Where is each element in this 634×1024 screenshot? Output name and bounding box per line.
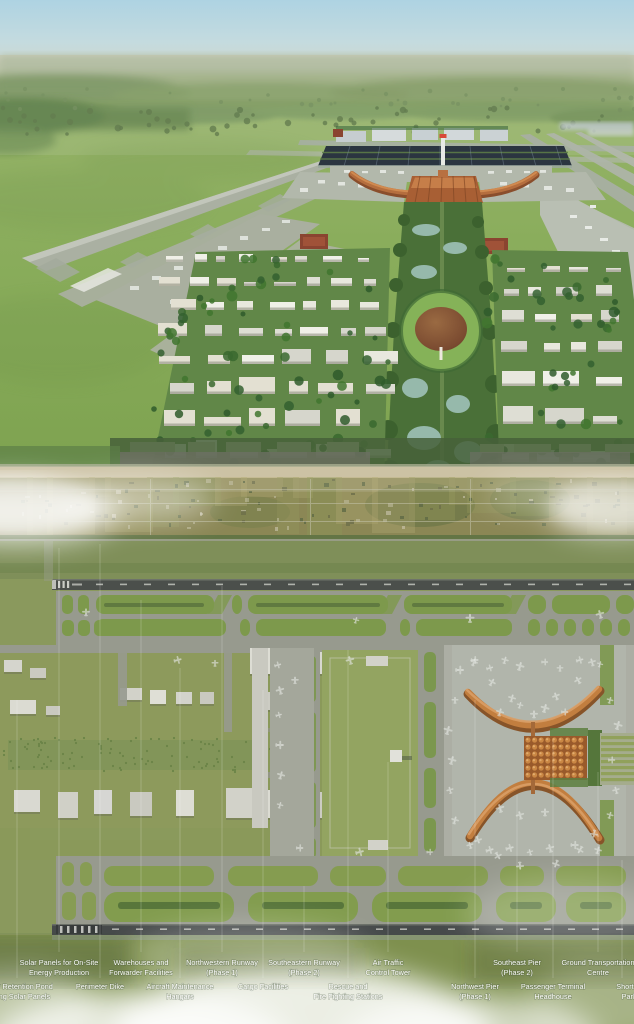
svg-text:Energy Production: Energy Production — [29, 968, 89, 977]
svg-text:(Phase 2): (Phase 2) — [288, 968, 320, 977]
svg-text:Rescue and: Rescue and — [329, 982, 368, 991]
svg-text:Cargo Facilities: Cargo Facilities — [238, 982, 289, 991]
svg-text:Warehouses and: Warehouses and — [114, 958, 169, 967]
svg-text:Short Term: Short Term — [616, 982, 634, 991]
svg-text:Control Tower: Control Tower — [366, 968, 411, 977]
svg-text:with Floating Solar Panels: with Floating Solar Panels — [0, 992, 51, 1001]
svg-text:Headhouse: Headhouse — [534, 992, 571, 1001]
svg-text:(Phase 1): (Phase 1) — [206, 968, 238, 977]
svg-text:Northwest Pier: Northwest Pier — [451, 982, 499, 991]
svg-text:Air Traffic: Air Traffic — [373, 958, 404, 967]
svg-text:Southeast Pier: Southeast Pier — [493, 958, 541, 967]
svg-text:Hangars: Hangars — [166, 992, 194, 1001]
svg-text:Ground Transportation: Ground Transportation — [561, 958, 634, 967]
svg-text:Northwestern Runway: Northwestern Runway — [186, 958, 258, 967]
svg-text:Stormwater Retention Pond: Stormwater Retention Pond — [0, 982, 53, 991]
svg-text:Forwarder Facilities: Forwarder Facilities — [109, 968, 173, 977]
svg-text:Passenger Terminal: Passenger Terminal — [521, 982, 586, 991]
svg-text:Centre: Centre — [587, 968, 609, 977]
svg-text:(Phase 2): (Phase 2) — [501, 968, 533, 977]
svg-text:Fire Fighting Stations: Fire Fighting Stations — [314, 992, 383, 1001]
svg-text:Southeastern Runway: Southeastern Runway — [268, 958, 340, 967]
svg-text:Solar Panels for On-Site: Solar Panels for On-Site — [20, 958, 99, 967]
svg-text:(Phase 1): (Phase 1) — [459, 992, 491, 1001]
svg-text:Perimeter Dike: Perimeter Dike — [76, 982, 124, 991]
svg-text:Aircraft Maintenance: Aircraft Maintenance — [147, 982, 214, 991]
svg-text:Parking: Parking — [622, 992, 634, 1001]
